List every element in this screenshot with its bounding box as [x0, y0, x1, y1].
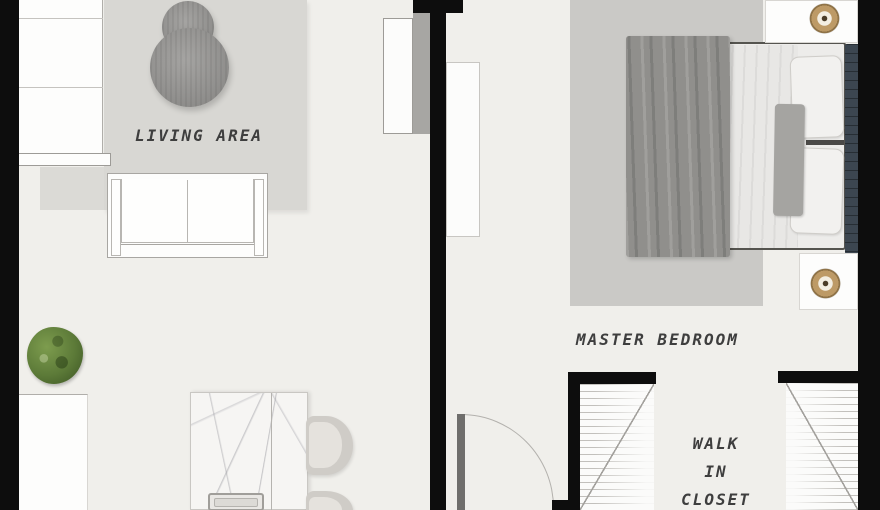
sofa-armrest-left: [111, 179, 121, 256]
wall-right: [858, 0, 880, 510]
wall-center: [430, 0, 446, 510]
wardrobe-right: [786, 383, 858, 510]
window-sill: [16, 153, 111, 166]
door-bottom-stub-wall: [552, 500, 568, 510]
label-walk-in-closet-line3: CLOSET: [662, 486, 770, 510]
entry-door-pocket: [413, 13, 430, 134]
kitchen-island: [190, 392, 308, 510]
closet-wall-left-horizontal: [568, 372, 656, 384]
sofa-armrest-right: [254, 179, 264, 256]
nightstand-bottom: [799, 253, 858, 310]
window-pane-divider: [19, 87, 103, 88]
label-living-area: LIVING AREA: [135, 127, 263, 145]
entry-door-leaf-left: [383, 18, 413, 134]
island-seam: [271, 393, 272, 510]
label-walk-in-closet: WALK IN CLOSET: [662, 430, 770, 510]
blanket: [626, 36, 730, 257]
round-chair-large: [150, 28, 229, 107]
closet-wall-right-horizontal: [778, 371, 858, 383]
sink-basin: [214, 498, 258, 507]
label-walk-in-closet-line1: WALK: [662, 430, 770, 458]
nightstand-top: [765, 0, 858, 43]
sofa: [107, 173, 268, 258]
lamp-icon: [810, 268, 841, 299]
sofa-back-line: [121, 244, 254, 245]
window-top-left: [19, 0, 103, 155]
wall-left: [0, 0, 19, 510]
sink: [208, 493, 264, 510]
rug-extension: [40, 167, 104, 210]
stool-bottom: [306, 491, 353, 510]
wardrobe-left: [580, 384, 654, 510]
lamp-icon: [809, 3, 840, 34]
potted-plant: [27, 327, 83, 384]
stool-seat: [309, 497, 342, 510]
window-bottom-left: [19, 394, 88, 510]
stool-seat: [309, 422, 342, 468]
stool-top: [306, 416, 353, 475]
floor-plan: LIVING AREA MASTER BEDROOM WALK IN CLOSE…: [0, 0, 880, 510]
entry-door-leaf-right: [446, 62, 480, 237]
pillow-gap: [806, 140, 844, 145]
wall-top-stub: [413, 0, 463, 13]
label-walk-in-closet-line2: IN: [662, 458, 770, 486]
door-leaf: [457, 414, 465, 510]
closet-wall-left-vertical: [568, 372, 580, 510]
accent-pillow: [773, 104, 805, 217]
bed: [628, 40, 848, 253]
door-swing-arc: [461, 414, 554, 508]
window-pane-divider: [19, 18, 103, 19]
label-master-bedroom: MASTER BEDROOM: [576, 331, 739, 349]
sofa-seat-divider: [187, 180, 188, 242]
